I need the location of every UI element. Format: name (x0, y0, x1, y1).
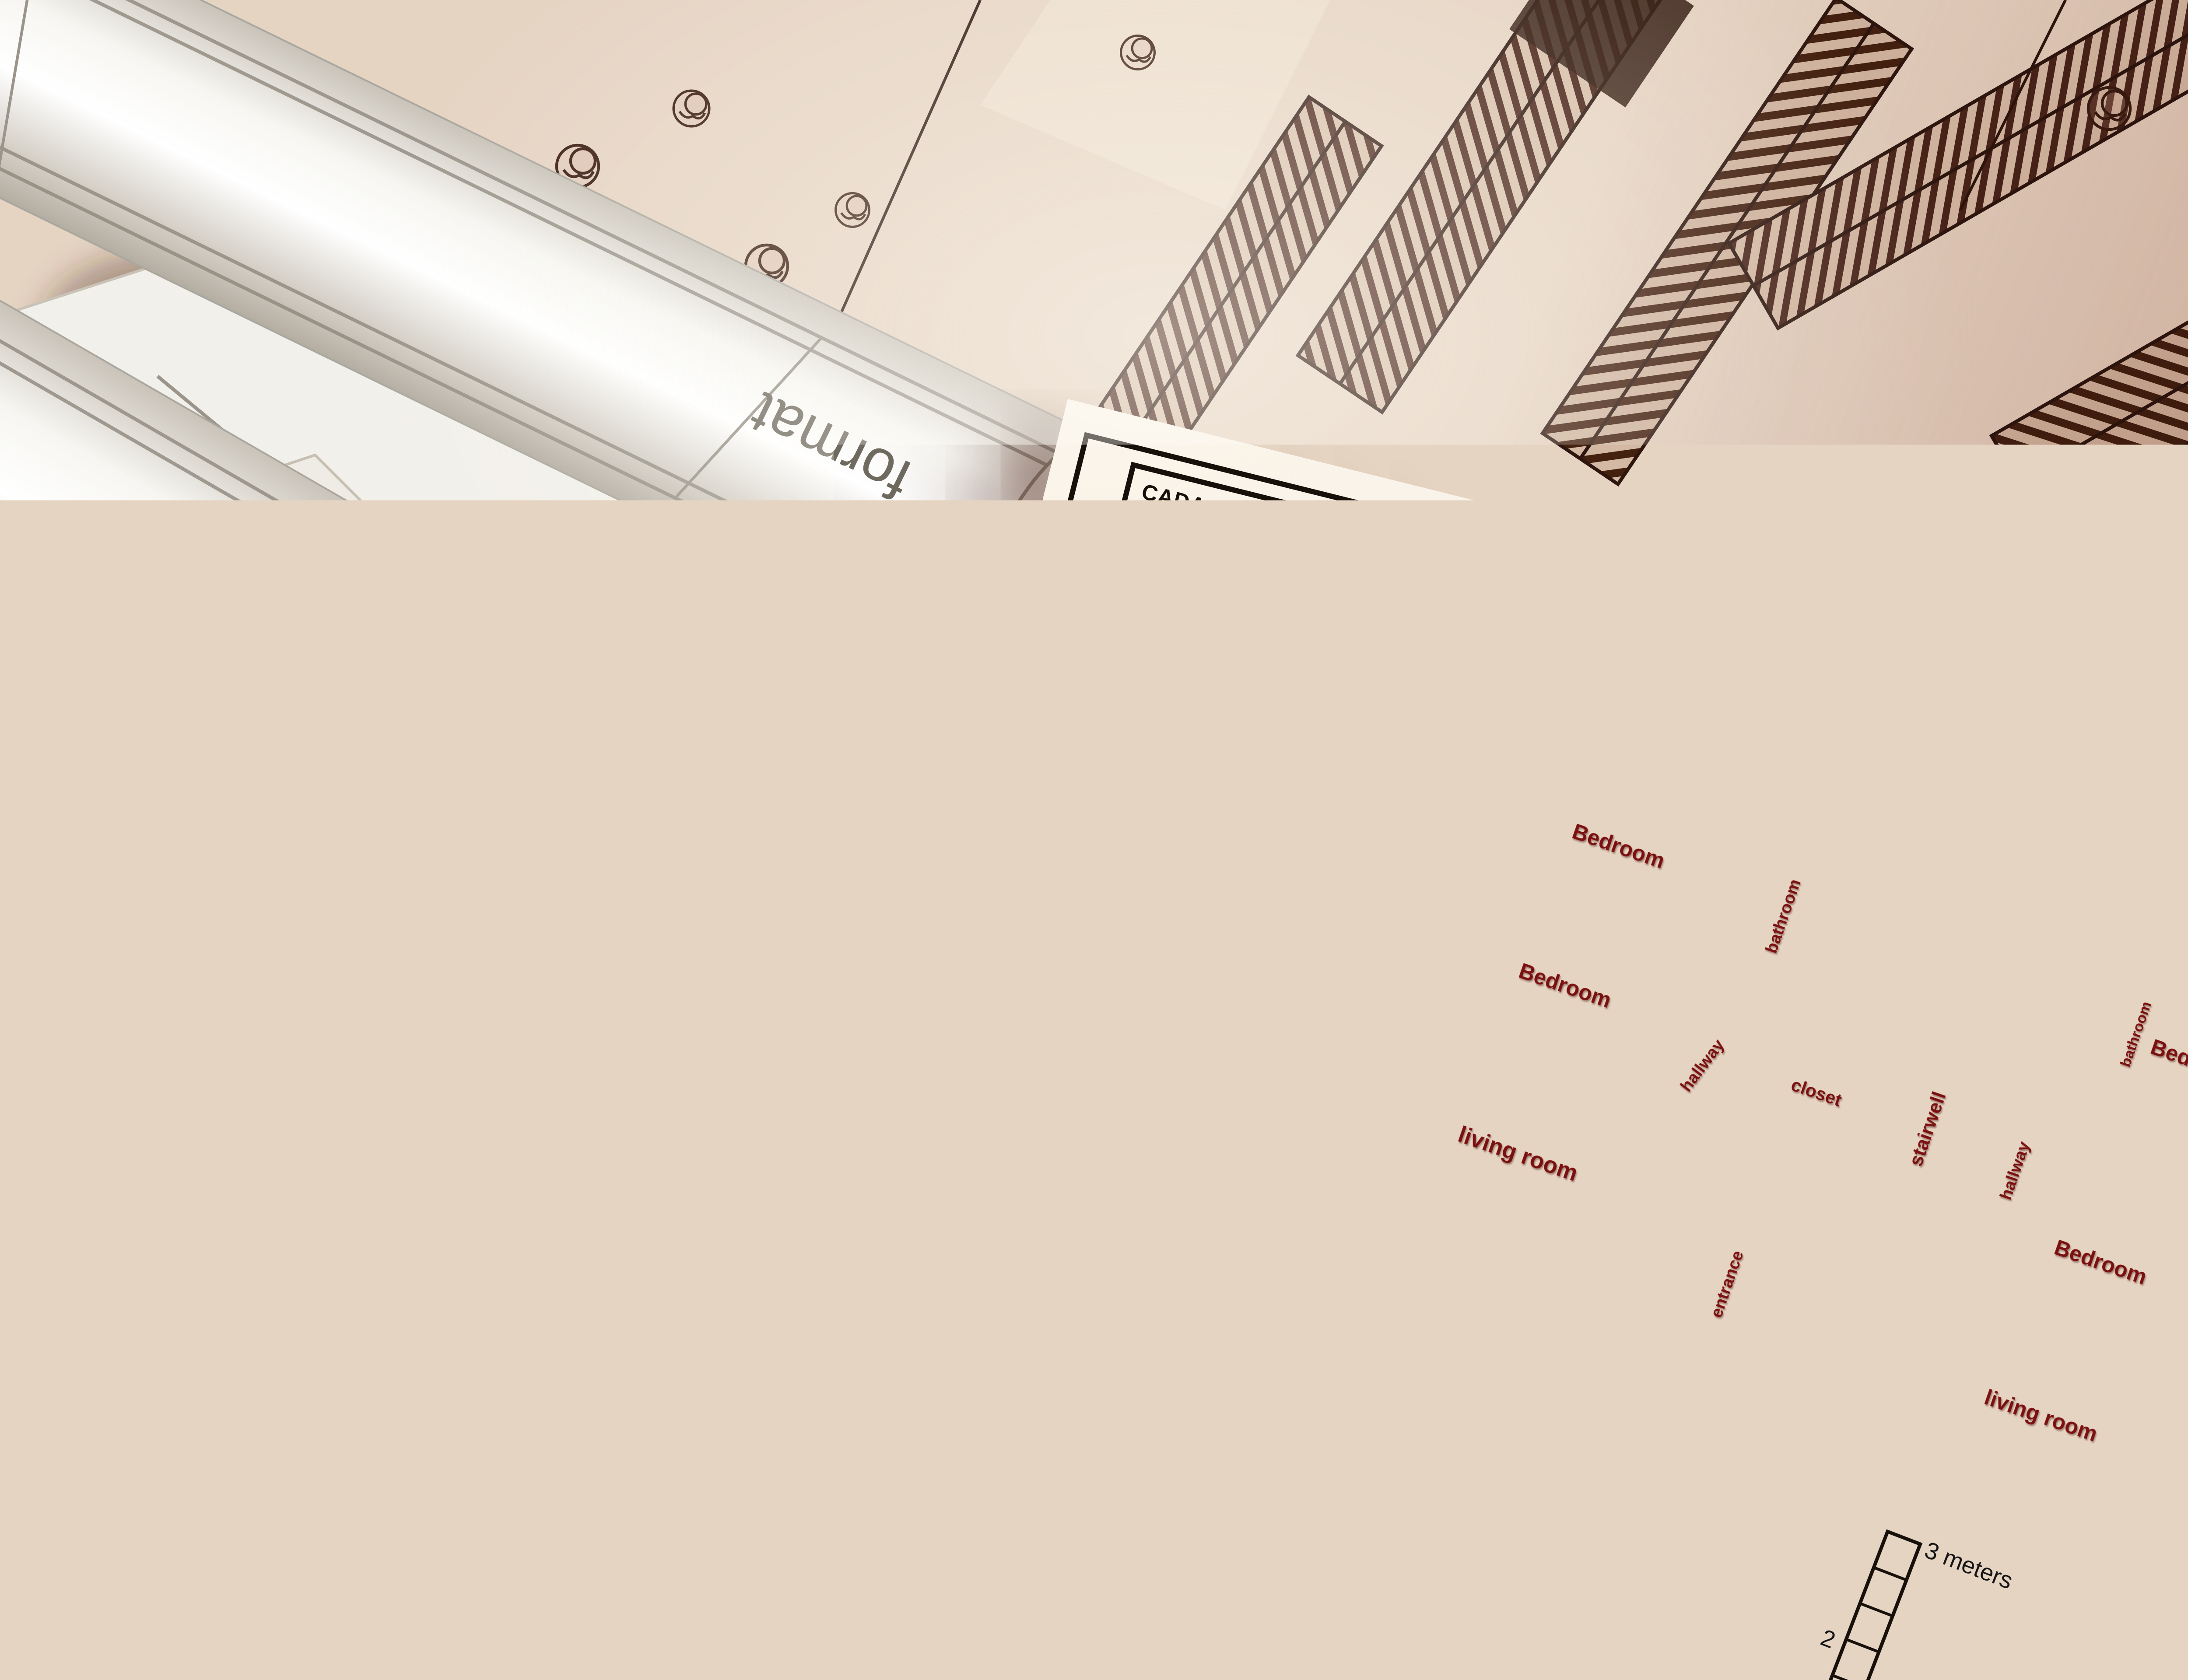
parcel-02-left: 02 (815, 1492, 853, 1530)
dim-380: 380 (1543, 1002, 1578, 1031)
room-living-left: living room (1455, 1121, 1581, 1186)
room-bedroom-l2: Bedroom (1516, 958, 1614, 1012)
scale-bar-2: 2 (1817, 1624, 1839, 1654)
room-bedroom-tr: Bedroom (2148, 1034, 2188, 1088)
scale-bar-label: 3 meters (1921, 1537, 2016, 1594)
first-floor-unit-left: 05 (1360, 1584, 1398, 1621)
parcel-03-left: 03 (985, 1417, 1026, 1458)
parcel-01-left-part: Part. 603 (943, 1563, 1055, 1631)
dim-360: 360 (2054, 1305, 2089, 1334)
room-bedroom-r2: Bedroom (2051, 1235, 2150, 1289)
room-stairwell: stairwell (1905, 1089, 1950, 1169)
parcel-01-left-num: 01 (997, 1536, 1035, 1574)
first-floor-unit-right: 05 (1562, 1670, 1600, 1680)
dim-515: 515 (1482, 1201, 1517, 1230)
room-hallway-left: hallway (1676, 1036, 1728, 1095)
room-closet: closet (1788, 1074, 1844, 1110)
parcel-04-left: 04 (1020, 1175, 1064, 1218)
room-hallway-right: hallway (1996, 1139, 2034, 1202)
photo-scene: format oil 61 CADASTRAL MAP WITH PARCEL … (0, 0, 2188, 1680)
room-entrance: entrance (1707, 1248, 1747, 1320)
dim-410: 410 (1902, 1325, 1931, 1360)
dim-255-living: 255 (1982, 1354, 2017, 1383)
